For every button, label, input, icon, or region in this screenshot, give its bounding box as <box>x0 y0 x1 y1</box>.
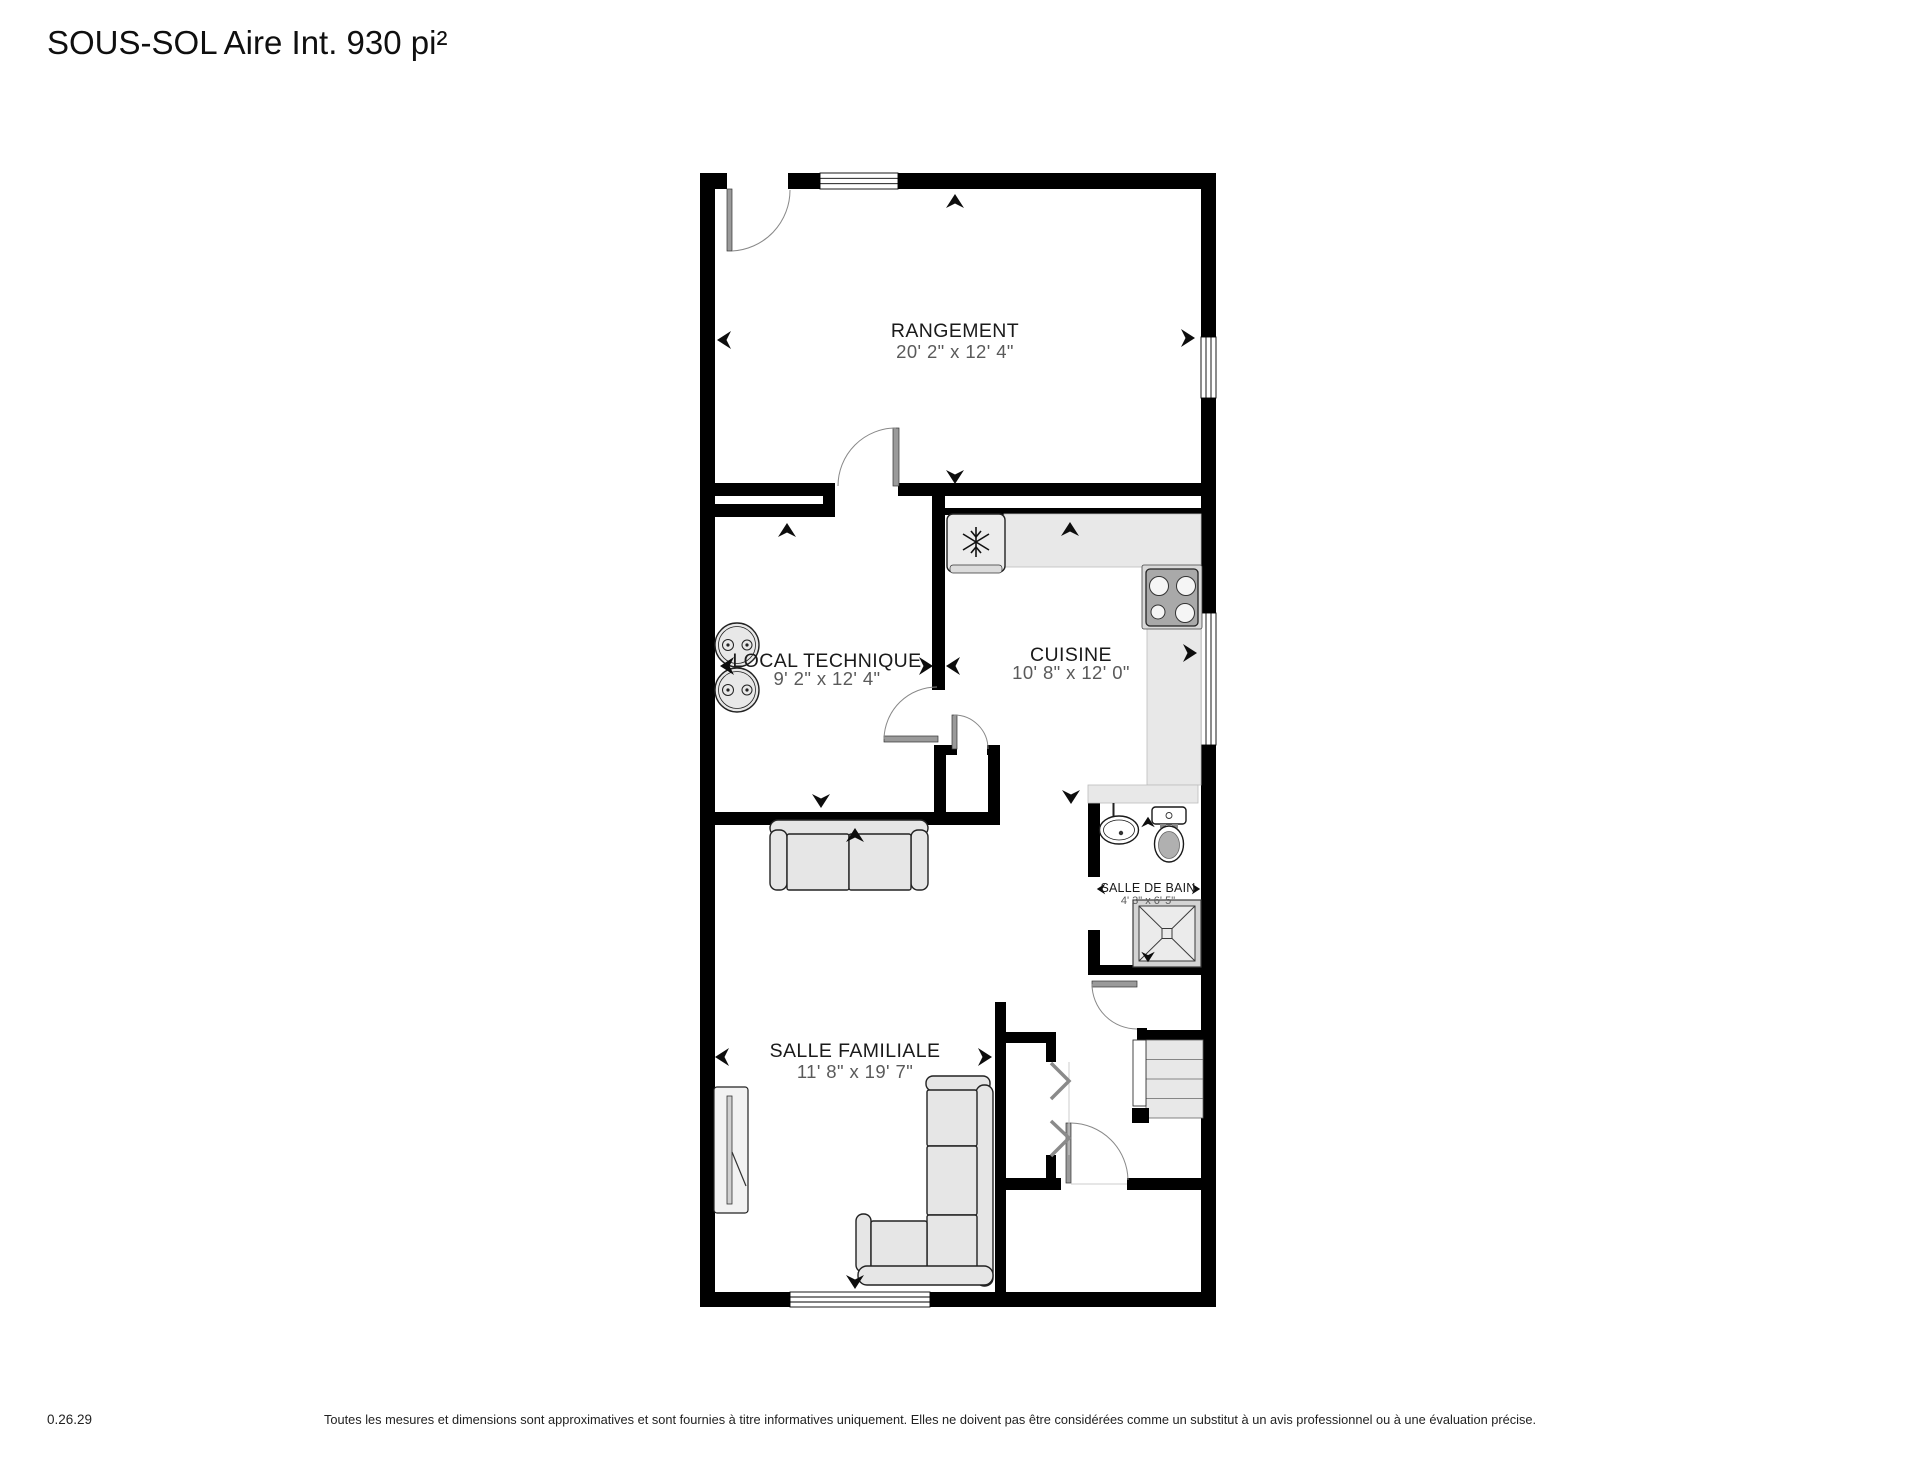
sectional-sofa <box>856 1076 993 1286</box>
disclaimer-text: Toutes les mesures et dimensions sont ap… <box>324 1412 1536 1427</box>
window-bottom <box>790 1292 930 1307</box>
version-number: 0.26.29 <box>47 1412 92 1427</box>
room-dims-local-technique: 9' 2" x 12' 4" <box>773 668 880 689</box>
tv <box>714 1087 748 1213</box>
toilet <box>1152 807 1186 862</box>
staircase <box>1132 1040 1203 1123</box>
room-dims-salle-familiale: 11' 8" x 19' 7" <box>797 1061 913 1082</box>
bathroom-sink <box>1100 803 1139 844</box>
closet-door <box>952 715 988 749</box>
footer: 0.26.29 Toutes les mesures et dimensions… <box>47 1412 1536 1427</box>
stair-newel-post <box>1132 1108 1149 1123</box>
room-dims-rangement: 20' 2" x 12' 4" <box>896 341 1014 362</box>
window-right-cuisine <box>1201 613 1216 745</box>
room-label-salle-de-bain: SALLE DE BAIN <box>1100 881 1195 895</box>
local-technique-door <box>884 687 938 742</box>
window-top <box>820 173 898 189</box>
dryer-icon <box>715 668 759 712</box>
fridge <box>947 514 1005 573</box>
room-label-salle-familiale: SALLE FAMILIALE <box>770 1040 941 1062</box>
shower <box>1133 900 1201 967</box>
entry-door <box>727 189 790 251</box>
floor-plan: RANGEMENT 20' 2" x 12' 4" LOCAL TECHNIQU… <box>700 173 1216 1307</box>
back-room-door <box>1066 1123 1128 1184</box>
page-title: SOUS-SOL Aire Int. 930 pi² <box>47 24 447 61</box>
floor-plan-page: SOUS-SOL Aire Int. 930 pi² <box>0 0 1920 1483</box>
room-label-rangement: RANGEMENT <box>891 320 1019 342</box>
rangement-door <box>838 428 899 486</box>
floor-plan-canvas: SOUS-SOL Aire Int. 930 pi² <box>0 0 1920 1483</box>
stove <box>1142 565 1202 629</box>
room-dims-salle-de-bain: 4' 3" x 6' 5" <box>1121 895 1175 907</box>
loveseat <box>770 820 928 890</box>
stair-handrail <box>1133 1040 1146 1106</box>
room-dims-cuisine: 10' 8" x 12' 0" <box>1012 662 1130 683</box>
stair-landing-door <box>1092 981 1137 1029</box>
bifold-closet-doors <box>1051 1062 1069 1156</box>
window-right-rangement <box>1201 337 1216 398</box>
